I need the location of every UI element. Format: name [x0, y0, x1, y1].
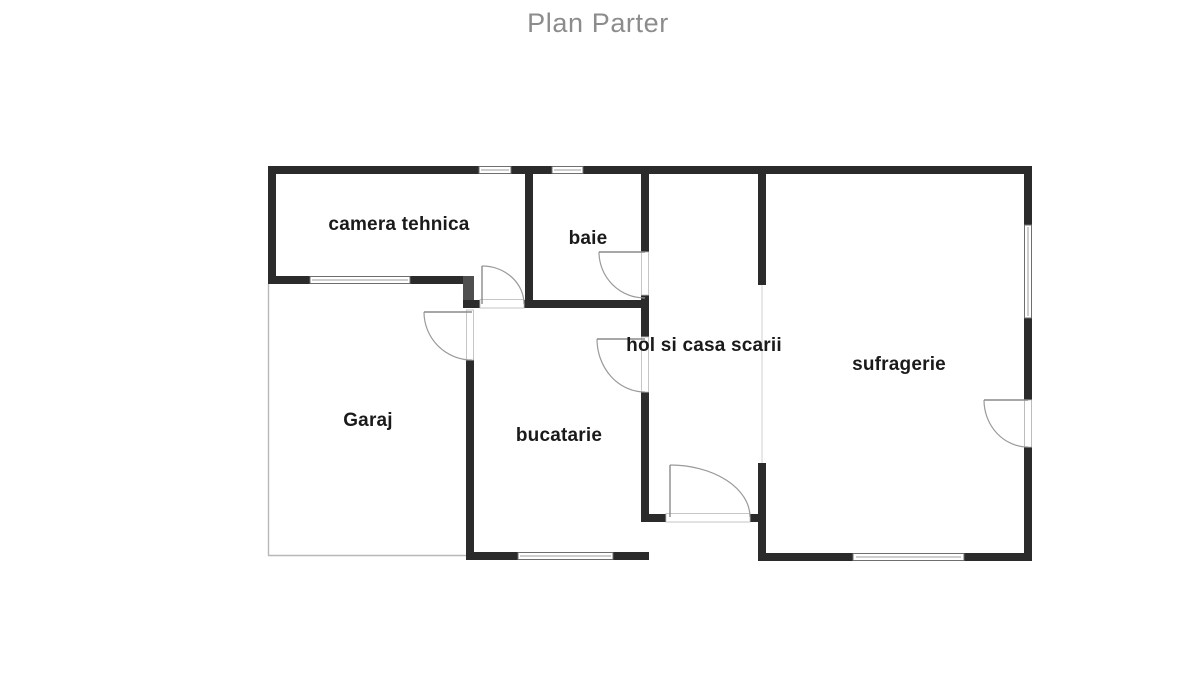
floor-plan-drawing	[0, 0, 1200, 675]
window-sufragerie-bottom	[853, 554, 964, 561]
room-label-hol-si-casa-scarii: hol si casa scarii	[626, 335, 782, 357]
wall-kitchen-left	[466, 358, 474, 560]
wall-baie-hol-upper	[641, 166, 649, 252]
floor-plan-page: Plan Parter	[0, 0, 1200, 675]
window-kitchen-bottom	[518, 553, 613, 560]
window-top-left	[479, 167, 511, 174]
wall-camera-tehnica-left	[268, 166, 276, 284]
wall-hol-sufragerie-lower	[758, 463, 766, 561]
room-label-camera-tehnica: camera tehnica	[328, 214, 469, 236]
window-top-baie	[552, 167, 583, 174]
wall-hol-left-lower	[641, 392, 649, 522]
wall-baie-hol-mid	[641, 295, 649, 337]
wall-hol-sufragerie-upper	[758, 166, 766, 285]
room-label-sufragerie: sufragerie	[852, 354, 946, 376]
room-label-garaj: Garaj	[343, 410, 393, 432]
wall-top	[268, 166, 1032, 174]
room-label-bucatarie: bucatarie	[516, 425, 602, 447]
window-sufragerie-right	[1025, 225, 1032, 318]
door-entrance-hol	[666, 465, 750, 522]
room-label-baie: baie	[569, 228, 608, 250]
door-baie	[599, 252, 649, 298]
door-sufragerie-exterior	[984, 400, 1032, 447]
wall-camera-tehnica-baie-divider	[525, 166, 533, 308]
door-garaj-bucatarie	[424, 310, 474, 360]
door-bucatarie-camera-tehnica	[480, 266, 524, 308]
window-camera-tehnica-bottom	[310, 277, 410, 284]
doors	[424, 252, 1032, 522]
